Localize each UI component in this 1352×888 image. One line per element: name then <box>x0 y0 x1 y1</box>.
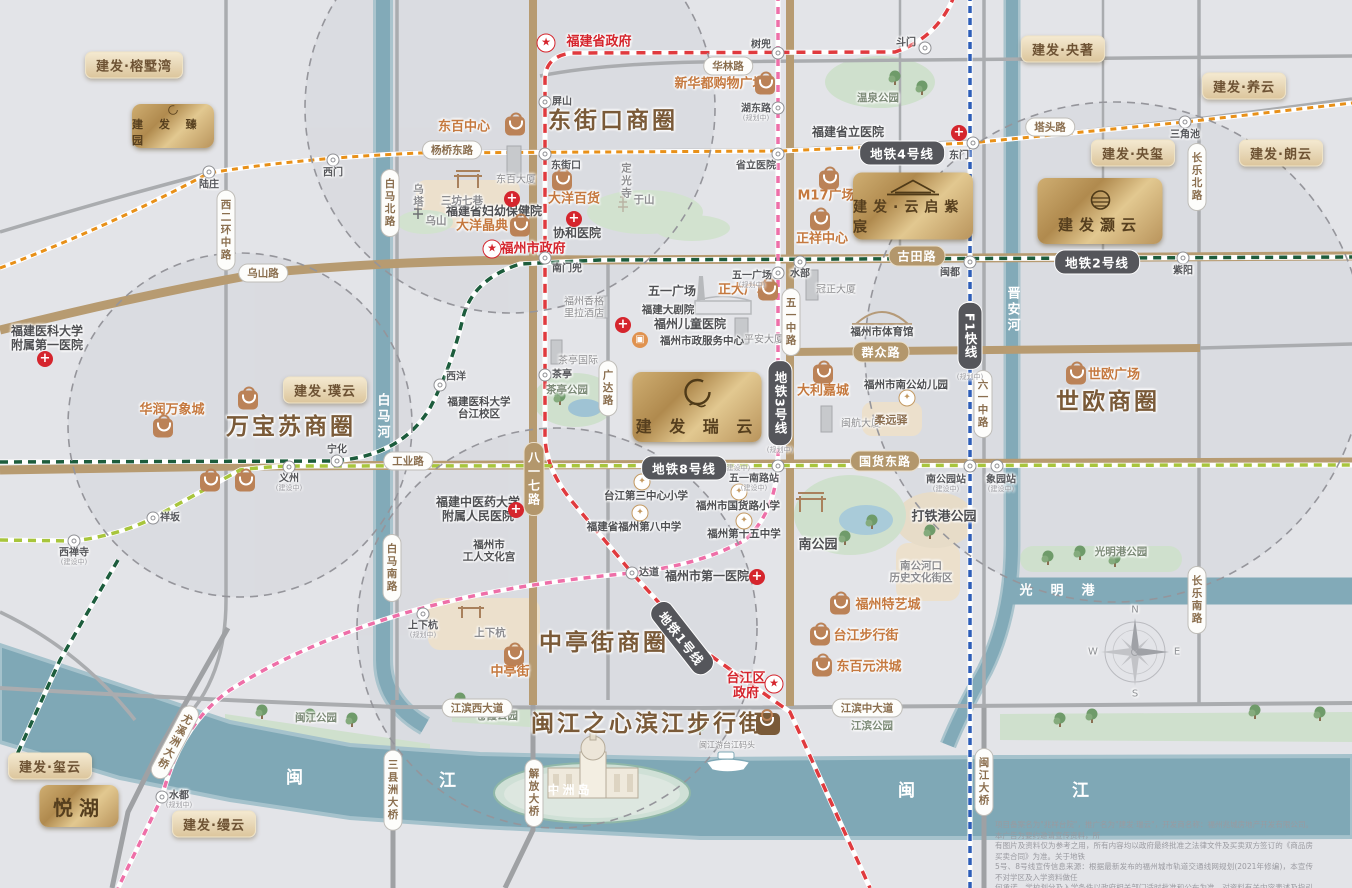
road-label: 群众路 <box>852 342 909 363</box>
government-star-icon: ★ <box>483 240 502 259</box>
school-icon: ✦ <box>632 505 649 522</box>
project-badge: 建发·榕墅湾 <box>85 52 183 79</box>
school-label: 福州第十五中学 <box>707 528 781 540</box>
metro-station-label: 南门兜 <box>552 263 582 275</box>
shop-label: 大利嘉城 <box>797 385 849 400</box>
school-label: 福建省福州第八中学 <box>587 521 682 533</box>
metro-station-label: 闽都 <box>940 267 960 279</box>
metro-station-dot <box>772 460 785 473</box>
metro-station-dot <box>626 567 639 580</box>
place-label: 茶亭公园 <box>546 384 588 396</box>
place-label: 于山 <box>634 194 655 206</box>
place-label: 乌山 <box>426 215 447 227</box>
metro-station-dot <box>147 512 160 525</box>
district-title: 万宝苏商圈 <box>226 414 356 440</box>
place-label: 定光寺 <box>620 162 632 200</box>
place-label: 福州市体育馆 <box>851 326 914 338</box>
metro-badge-tag: (规划中) <box>957 373 983 381</box>
metro-station-dot <box>539 252 552 265</box>
metro-station-dot <box>772 267 785 280</box>
metro-station-dot <box>991 460 1004 473</box>
road-label: 长乐北路 <box>1188 143 1207 211</box>
place-label: 闽江公园 <box>295 712 337 724</box>
school-icon: ✦ <box>899 390 916 407</box>
shop-label: 东百元洪城 <box>836 661 901 676</box>
shopping-bag-icon <box>1066 366 1086 385</box>
metro-station-dot <box>1177 252 1190 265</box>
map-label-layer: 东街口商圈万宝苏商圈世欧商圈中亭街商圈闽江之心滨江步行街古田路群众路国货东路八一… <box>0 0 1352 888</box>
shop-label: 正祥中心 <box>796 233 848 248</box>
metro-station-label: 祥坂 <box>160 512 180 524</box>
metro-station-dot <box>68 535 81 548</box>
road-label: 杨桥东路 <box>422 141 482 160</box>
hospital-label: 福建省妇幼保健院 <box>446 205 542 219</box>
metro-badge-tag: (规划中) <box>767 446 793 454</box>
metro-station-label: 宁化 <box>327 444 347 456</box>
metro-station-label: 西洋 <box>446 371 466 383</box>
hospital-cross-icon: + <box>508 502 524 518</box>
water-label: 光明港 <box>1019 585 1112 600</box>
road-label: 五一中路 <box>782 288 801 356</box>
metro-station-label: 斗门 <box>896 37 916 49</box>
project-name: 建 发 臻 园 <box>132 116 214 148</box>
road-label: 尤溪洲大桥 <box>148 702 203 782</box>
government-label: 福建省政府 <box>566 36 631 51</box>
place-label: 打铁港公园 <box>911 511 976 526</box>
road-label: 三县洲大桥 <box>384 750 403 831</box>
metro-station-label: 陆庄 <box>199 179 219 191</box>
place-label: 福州市工人文化宫 <box>463 539 516 563</box>
road-label: 江滨西大道 <box>442 699 513 718</box>
metro-line-badge: F1快线 <box>958 302 983 370</box>
water-label: 闽 <box>898 782 918 802</box>
hospital-cross-icon: + <box>504 191 520 207</box>
road-label: 白马南路 <box>383 534 402 602</box>
water-label: 江 <box>439 772 459 792</box>
project-logo-badge: 建发·云启紫宸 <box>853 173 973 240</box>
place-label: 柔远驿 <box>875 415 908 428</box>
road-label: 白马北路 <box>381 169 400 237</box>
metro-badge-tag: (建设中) <box>724 464 750 472</box>
hospital-label: 协和医院 <box>553 227 601 241</box>
place-label: 五一广场 <box>648 285 696 299</box>
place-label: 闽江游台江码头 <box>699 740 755 749</box>
fuzhou-location-map: 东街口商圈万宝苏商圈世欧商圈中亭街商圈闽江之心滨江步行街古田路群众路国货东路八一… <box>0 0 1352 888</box>
school-label: 福州市国货路小学 <box>696 500 780 512</box>
place-label: 茶亭国际 <box>558 355 598 367</box>
metro-station-tag: (建设中) <box>988 485 1014 493</box>
road-label: 长乐南路 <box>1188 566 1207 634</box>
metro-line-badge: 地铁8号线 <box>641 456 727 481</box>
metro-station-label: 达道 <box>639 567 659 579</box>
compass-e-label: E <box>1174 646 1180 658</box>
shop-label: 大洋晶典 <box>456 220 508 235</box>
project-name: 建 发 瑞 云 <box>636 413 759 437</box>
metro-station-label: 茶亭 <box>552 369 572 381</box>
metro-station-dot <box>919 42 932 55</box>
school-icon: ✦ <box>736 513 753 530</box>
metro-station-dot <box>539 369 552 382</box>
hospital-cross-icon: + <box>749 569 765 585</box>
road-label: 国货东路 <box>850 451 920 472</box>
metro-station-dot <box>434 379 447 392</box>
water-label: 江 <box>1072 782 1092 802</box>
district-title: 世欧商圈 <box>1056 389 1160 415</box>
project-badge: 建发·养云 <box>1202 73 1286 100</box>
hospital-label: 福建医科大学附属第一医院 <box>11 325 83 353</box>
place-label: 福建大剧院 <box>642 304 695 316</box>
hospital-cross-icon: + <box>566 211 582 227</box>
place-label: 温泉公园 <box>857 92 899 104</box>
water-label: 闽 <box>286 769 306 789</box>
gov-service-icon: ▣ <box>632 332 648 348</box>
metro-station-tag: (建设中) <box>933 485 959 493</box>
metro-station-tag: (建设中) <box>276 484 302 492</box>
compass-n-label: N <box>1131 604 1138 616</box>
compass-w-label: W <box>1088 646 1098 658</box>
compass-s-label: S <box>1132 688 1138 700</box>
metro-station-dot <box>772 47 785 60</box>
place-label: 乌塔 <box>412 184 424 209</box>
government-star-icon: ★ <box>765 675 784 694</box>
shopping-bag-icon <box>200 473 220 492</box>
metro-station-tag: (建设中) <box>61 558 87 566</box>
shopping-bag-icon <box>756 713 780 735</box>
road-label: 八一七路 <box>524 442 545 516</box>
project-badge: 建发·璞云 <box>283 377 367 404</box>
shopping-bag-icon <box>552 172 572 191</box>
water-label: 晋安河 <box>1004 286 1019 334</box>
place-label: 福建医科大学台江校区 <box>448 396 511 420</box>
place-label: 东百大厦 <box>496 174 536 186</box>
shopping-bag-icon <box>504 647 524 666</box>
shopping-bag-icon <box>755 76 775 95</box>
road-label: 乌山路 <box>238 264 288 283</box>
school-label: 台江第三中心小学 <box>604 490 688 502</box>
water-label: 白马河 <box>374 393 389 441</box>
metro-line-badge: 地铁3号线 <box>768 360 793 446</box>
project-badge: 建发·玺云 <box>8 753 92 780</box>
road-label: 工业路 <box>383 452 433 471</box>
metro-station-label: 紫阳 <box>1173 265 1193 277</box>
metro-station-dot <box>203 166 216 179</box>
shopping-bag-icon <box>238 391 258 410</box>
shopping-bag-icon <box>505 117 525 136</box>
metro-station-dot <box>964 460 977 473</box>
shopping-bag-icon <box>153 419 173 438</box>
metro-station-dot <box>772 102 785 115</box>
district-title: 中亭街商圈 <box>539 630 669 656</box>
place-label: 福州香格里拉酒店 <box>564 297 604 320</box>
project-logo-badge: 建 发 瑞 云 <box>633 372 762 442</box>
place-label: 南公河口历史文化街区 <box>890 560 953 584</box>
shop-label: 中亭街 <box>490 666 529 681</box>
metro-station-tag: (规划中) <box>739 281 765 289</box>
hospital-label: 福建省立医院 <box>812 126 884 140</box>
district-title: 闽江之心滨江步行街 <box>531 711 765 737</box>
project-logo-badge: 悦湖 <box>40 785 119 827</box>
road-label: 解放大桥 <box>525 759 544 827</box>
project-logo-badge: 建 发 臻 园 <box>132 104 214 148</box>
metro-station-dot <box>539 96 552 109</box>
hospital-cross-icon: + <box>37 351 53 367</box>
hospital-label: 福州儿童医院 <box>654 318 726 332</box>
metro-station-tag: (建设中) <box>741 484 767 492</box>
place-label: 光明港公园 <box>1095 546 1148 558</box>
metro-station-label: 树兜 <box>751 39 771 51</box>
metro-station-dot <box>967 137 980 150</box>
project-badge: 建发·央玺 <box>1091 140 1175 167</box>
metro-station-label: 省立医院 <box>736 160 776 172</box>
metro-station-dot <box>417 608 430 621</box>
shopping-bag-icon <box>819 171 839 190</box>
shop-label: 新华都购物广场 <box>674 78 765 93</box>
place-label: 三坊七巷 <box>441 195 483 207</box>
project-badge: 建发·朗云 <box>1239 140 1323 167</box>
metro-station-label: 水部 <box>790 268 810 280</box>
shopping-bag-icon <box>830 596 850 615</box>
hospital-label: 福州市第一医院 <box>665 570 749 584</box>
project-name: 建发灏云 <box>1058 214 1142 235</box>
metro-station-tag: (规划中) <box>166 801 192 809</box>
shopping-bag-icon <box>813 365 833 384</box>
place-label: 平安大厦 <box>744 334 784 346</box>
metro-station-dot <box>331 455 344 468</box>
project-logo-badge: 建发灏云 <box>1038 178 1163 244</box>
road-label: 塔头路 <box>1025 118 1075 137</box>
metro-station-dot <box>283 461 296 474</box>
place-label: 福州市政服务中心 <box>660 335 744 347</box>
road-label: 广达路 <box>599 360 618 416</box>
hospital-cross-icon: + <box>951 125 967 141</box>
road-label: 华林路 <box>703 57 753 76</box>
metro-station-dot <box>794 256 807 269</box>
metro-station-tag: (规划中) <box>410 631 436 639</box>
metro-station-dot <box>327 154 340 167</box>
shop-label: 大洋百货 <box>548 193 600 208</box>
shopping-bag-icon <box>810 627 830 646</box>
disclaimer-text: 项目备案名为"兆祥台院"，推广名为"建发·瑞云"，开发商名称：福州兆城房地产开发… <box>995 820 1313 888</box>
metro-station-dot <box>1179 116 1192 129</box>
project-name: 悦湖 <box>53 792 105 821</box>
government-star-icon: ★ <box>537 34 556 53</box>
road-label: 闽江大桥 <box>975 748 994 816</box>
place-label: 江滨公园 <box>851 720 893 732</box>
shop-label: 台江步行街 <box>833 630 898 645</box>
project-name: 建发·云启紫宸 <box>853 196 973 236</box>
shop-label: 华润万象城 <box>139 404 204 419</box>
place-label: 冠正大厦 <box>816 284 856 296</box>
government-label: 台江区政府 <box>726 672 765 702</box>
shop-label: M17广场 <box>797 190 854 205</box>
metro-line-badge: 地铁2号线 <box>1054 250 1140 275</box>
place-label: 上下杭 <box>474 627 506 639</box>
metro-station-label: 东街口 <box>551 160 581 172</box>
metro-station-label: 东门 <box>949 150 969 162</box>
metro-station-label: 三角池 <box>1170 129 1200 141</box>
shopping-bag-icon <box>810 212 830 231</box>
metro-station-dot <box>539 148 552 161</box>
road-label: 江滨中大道 <box>832 699 903 718</box>
metro-line-badge: 地铁4号线 <box>859 141 945 166</box>
hospital-cross-icon: + <box>615 317 631 333</box>
place-label: 南公园 <box>798 539 837 554</box>
government-label: 福州市政府 <box>500 243 565 258</box>
shop-label: 福州特艺城 <box>855 599 920 614</box>
shop-label: 世欧广场 <box>1088 369 1140 384</box>
shopping-bag-icon <box>510 218 530 237</box>
shopping-bag-icon <box>235 473 255 492</box>
metro-station-dot <box>772 148 785 161</box>
road-label: 古田路 <box>888 246 945 267</box>
metro-station-label: 屏山 <box>552 96 572 108</box>
metro-station-label: 西门 <box>323 167 343 179</box>
project-badge: 建发·央著 <box>1021 36 1105 63</box>
road-label: 西二环中路 <box>217 190 236 271</box>
water-label: 中洲岛 <box>547 784 592 798</box>
shopping-bag-icon <box>812 658 832 677</box>
shop-label: 东百中心 <box>438 121 490 136</box>
metro-station-tag: (规划中) <box>743 114 769 122</box>
metro-station-dot <box>964 256 977 269</box>
district-title: 东街口商圈 <box>548 108 678 134</box>
project-badge: 建发·缦云 <box>172 811 256 838</box>
